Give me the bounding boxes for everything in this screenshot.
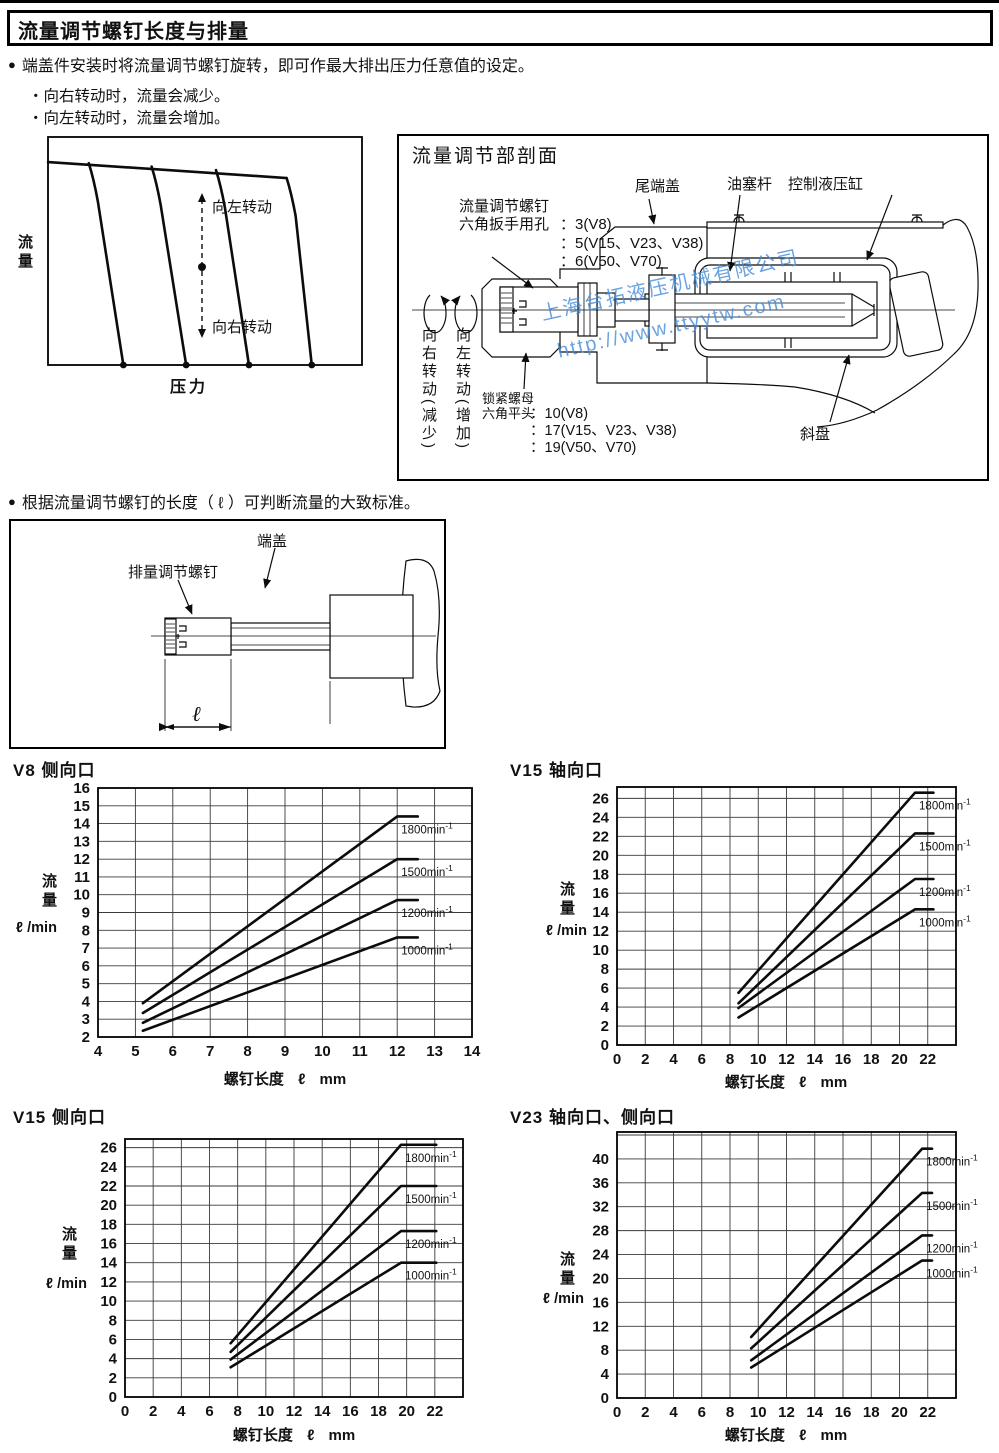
- svg-text:0: 0: [109, 1389, 117, 1406]
- svg-text:24: 24: [592, 1247, 609, 1264]
- pq-chart-canvas: [0, 130, 400, 405]
- svg-text:20: 20: [891, 1404, 908, 1421]
- chart-xlabel: 螺钉长度 ℓ mm: [636, 1424, 936, 1445]
- svg-text:16: 16: [592, 1294, 609, 1311]
- svg-text:6: 6: [82, 958, 90, 975]
- svg-text:1800min-1: 1800min-1: [401, 820, 453, 836]
- svg-text:7: 7: [206, 1043, 214, 1060]
- svg-text:20: 20: [592, 1270, 609, 1287]
- svg-text:10: 10: [592, 942, 609, 959]
- svg-text:12: 12: [389, 1043, 406, 1060]
- label-end-cover: 端盖: [257, 530, 287, 551]
- chart-ylabel-cn: 流量: [38, 873, 59, 911]
- chart-ylabel-unit: ℓ /min: [46, 1276, 87, 1292]
- svg-text:13: 13: [73, 833, 90, 850]
- intro-bullet: ●端盖件安装时将流量调节螺钉旋转，即可作最大排出压力任意值的设定。: [8, 52, 534, 76]
- label-swash-plate: 斜盘: [800, 423, 830, 444]
- svg-text:9: 9: [82, 905, 90, 922]
- svg-text:22: 22: [100, 1178, 117, 1195]
- svg-text:2: 2: [109, 1370, 117, 1387]
- svg-text:8: 8: [726, 1051, 734, 1068]
- svg-text:2: 2: [641, 1051, 649, 1068]
- screw-figure-drawing: [8, 518, 448, 750]
- svg-text:5: 5: [82, 976, 90, 993]
- svg-text:6: 6: [169, 1043, 177, 1060]
- label-adjust-screw: 排量调节螺钉: [128, 561, 218, 582]
- svg-text:26: 26: [592, 790, 609, 807]
- svg-text:4: 4: [601, 1366, 610, 1383]
- svg-text:14: 14: [100, 1255, 117, 1272]
- svg-text:12: 12: [778, 1404, 795, 1421]
- intro-sub1: ・向右转动时，流量会减少。: [28, 84, 230, 106]
- svg-text:0: 0: [613, 1404, 621, 1421]
- svg-text:22: 22: [919, 1404, 936, 1421]
- svg-text:10: 10: [750, 1404, 767, 1421]
- svg-text:28: 28: [592, 1223, 609, 1240]
- svg-text:4: 4: [177, 1403, 186, 1420]
- svg-text:3: 3: [82, 1011, 90, 1028]
- svg-text:8: 8: [726, 1404, 734, 1421]
- chart-ylabel-cn: 流量: [556, 1251, 577, 1289]
- svg-text:12: 12: [592, 1318, 609, 1335]
- svg-text:11: 11: [352, 1043, 368, 1060]
- chart-ylabel-unit: ℓ /min: [16, 920, 57, 936]
- chart-title: V8 侧向口: [13, 756, 96, 781]
- svg-text:12: 12: [592, 923, 609, 940]
- svg-text:1200min-1: 1200min-1: [926, 1239, 978, 1255]
- svg-text:1500min-1: 1500min-1: [919, 837, 971, 853]
- svg-text:13: 13: [426, 1043, 443, 1060]
- chart-ylabel-cn: 流量: [556, 881, 577, 919]
- svg-text:18: 18: [863, 1404, 880, 1421]
- page-title-box: 流量调节螺钉长度与排量: [7, 10, 993, 46]
- svg-text:4: 4: [601, 999, 610, 1016]
- svg-text:5: 5: [131, 1043, 139, 1060]
- label-tail-cover: 尾端盖: [635, 175, 680, 196]
- svg-text:20: 20: [891, 1051, 908, 1068]
- nut-note-4: ：19(V50、V70): [530, 436, 636, 457]
- chart-v15-axial: 0246810121416182022024681012141618202224…: [500, 755, 999, 1100]
- svg-text:4: 4: [669, 1051, 678, 1068]
- chart-title: V23 轴向口、侧向口: [510, 1103, 675, 1128]
- svg-text:4: 4: [109, 1351, 118, 1368]
- svg-text:14: 14: [806, 1404, 823, 1421]
- svg-text:18: 18: [100, 1216, 117, 1233]
- turn-left-column: 向左转动(增加): [453, 327, 471, 451]
- svg-text:8: 8: [601, 1342, 609, 1359]
- svg-text:40: 40: [592, 1151, 609, 1168]
- svg-text:6: 6: [601, 980, 609, 997]
- bullet-icon: ●: [8, 57, 16, 72]
- svg-text:1000min-1: 1000min-1: [919, 913, 971, 929]
- chart-v8-side: 4567891011121314234567891011121314151618…: [0, 755, 499, 1100]
- chart-title: V15 侧向口: [13, 1103, 106, 1128]
- svg-text:18: 18: [863, 1051, 880, 1068]
- svg-text:9: 9: [281, 1043, 289, 1060]
- svg-text:6: 6: [698, 1404, 706, 1421]
- svg-text:20: 20: [592, 847, 609, 864]
- svg-text:16: 16: [592, 885, 609, 902]
- svg-text:1200min-1: 1200min-1: [401, 904, 453, 920]
- svg-text:0: 0: [613, 1051, 621, 1068]
- intro-sub2: ・向左转动时，流量会增加。: [28, 106, 230, 128]
- svg-text:6: 6: [205, 1403, 213, 1420]
- page-title: 流量调节螺钉长度与排量: [10, 13, 990, 44]
- label-control-cylinder: 控制液压缸: [788, 173, 863, 194]
- chart-v15-side: 0246810121416182022024681012141618202224…: [0, 1100, 499, 1453]
- svg-text:10: 10: [314, 1043, 331, 1060]
- svg-text:15: 15: [73, 798, 90, 815]
- svg-text:20: 20: [398, 1403, 415, 1420]
- svg-text:1000min-1: 1000min-1: [926, 1265, 978, 1281]
- svg-text:32: 32: [592, 1199, 609, 1216]
- bullet-icon: ●: [8, 494, 16, 509]
- svg-text:4: 4: [669, 1404, 678, 1421]
- svg-text:1000min-1: 1000min-1: [405, 1267, 457, 1283]
- svg-text:14: 14: [314, 1403, 331, 1420]
- screw-note-2a: 六角扳手用孔: [459, 213, 549, 234]
- second-bullet: ●根据流量调节螺钉的长度（ ℓ ）可判断流量的大致标准。: [8, 489, 420, 513]
- screw-note-4: ：6(V50、V70): [560, 250, 662, 271]
- svg-text:24: 24: [100, 1159, 117, 1176]
- chart-v8-canvas: 4567891011121314234567891011121314151618…: [0, 755, 499, 1100]
- chart-title: V15 轴向口: [510, 756, 603, 781]
- svg-text:0: 0: [601, 1037, 609, 1054]
- svg-text:8: 8: [82, 922, 90, 939]
- svg-text:1200min-1: 1200min-1: [405, 1235, 457, 1251]
- svg-text:26: 26: [100, 1140, 117, 1157]
- svg-text:1800min-1: 1800min-1: [919, 797, 971, 813]
- svg-text:14: 14: [806, 1051, 823, 1068]
- section-title: 流量调节部剖面: [412, 141, 559, 168]
- svg-text:14: 14: [464, 1043, 481, 1060]
- svg-text:0: 0: [121, 1403, 129, 1420]
- svg-text:16: 16: [73, 780, 90, 797]
- pq-ylabel: 流量: [14, 234, 35, 272]
- svg-text:1800min-1: 1800min-1: [926, 1153, 978, 1169]
- svg-text:14: 14: [592, 904, 609, 921]
- svg-text:24: 24: [592, 809, 609, 826]
- svg-text:36: 36: [592, 1175, 609, 1192]
- svg-text:14: 14: [73, 816, 90, 833]
- chart-xlabel: 螺钉长度 ℓ mm: [135, 1068, 435, 1089]
- svg-text:2: 2: [601, 1018, 609, 1035]
- svg-text:7: 7: [82, 940, 90, 957]
- svg-text:11: 11: [74, 869, 90, 886]
- svg-text:2: 2: [641, 1404, 649, 1421]
- turn-right-column: 向右转动(减少): [419, 327, 437, 451]
- svg-text:8: 8: [233, 1403, 241, 1420]
- svg-text:4: 4: [94, 1043, 103, 1060]
- svg-text:6: 6: [698, 1051, 706, 1068]
- svg-text:10: 10: [100, 1293, 117, 1310]
- svg-text:12: 12: [286, 1403, 303, 1420]
- svg-text:12: 12: [73, 851, 90, 868]
- svg-text:6: 6: [109, 1331, 117, 1348]
- label-plug-rod: 油塞杆: [727, 173, 772, 194]
- svg-text:12: 12: [778, 1051, 795, 1068]
- chart-ylabel-unit: ℓ /min: [546, 923, 587, 939]
- svg-text:16: 16: [835, 1051, 852, 1068]
- pq-chart: 流量 压力 向左转动 向右转动: [0, 130, 400, 405]
- svg-text:16: 16: [342, 1403, 359, 1420]
- svg-text:1000min-1: 1000min-1: [401, 941, 453, 957]
- svg-text:10: 10: [73, 887, 90, 904]
- svg-text:18: 18: [370, 1403, 387, 1420]
- chart-ylabel-cn: 流量: [58, 1226, 79, 1264]
- svg-text:4: 4: [82, 993, 91, 1010]
- screw-note-2b: ：3(V8): [560, 213, 612, 234]
- document-page: 流量调节螺钉长度与排量 ●端盖件安装时将流量调节螺钉旋转，即可作最大排出压力任意…: [0, 0, 999, 1453]
- svg-text:2: 2: [82, 1029, 90, 1046]
- chart-ylabel-unit: ℓ /min: [543, 1291, 584, 1307]
- svg-text:8: 8: [601, 961, 609, 978]
- svg-text:22: 22: [592, 828, 609, 845]
- section-view: 上海台拓液压机械有限公司 http://www.ttyytw.com 流量调节部…: [397, 127, 997, 483]
- svg-text:20: 20: [100, 1197, 117, 1214]
- pq-turn-left-label: 向左转动: [212, 196, 272, 217]
- screw-figure: 端盖 排量调节螺钉 ℓ: [8, 518, 448, 750]
- nut-note-2a: 六角平头: [482, 403, 534, 422]
- svg-text:8: 8: [109, 1312, 117, 1329]
- dim-ell: ℓ: [192, 702, 201, 727]
- chart-xlabel: 螺钉长度 ℓ mm: [144, 1424, 444, 1445]
- svg-text:22: 22: [919, 1051, 936, 1068]
- svg-text:10: 10: [750, 1051, 767, 1068]
- svg-text:8: 8: [243, 1043, 251, 1060]
- svg-text:1200min-1: 1200min-1: [919, 883, 971, 899]
- svg-text:12: 12: [100, 1274, 117, 1291]
- svg-text:18: 18: [592, 866, 609, 883]
- svg-text:1500min-1: 1500min-1: [405, 1190, 457, 1206]
- svg-text:10: 10: [257, 1403, 274, 1420]
- chart-xlabel: 螺钉长度 ℓ mm: [636, 1071, 936, 1092]
- pq-turn-right-label: 向右转动: [212, 316, 272, 337]
- svg-text:22: 22: [426, 1403, 443, 1420]
- pq-xlabel: 压力: [170, 373, 208, 397]
- scan-edge-line: [0, 0, 999, 3]
- svg-text:0: 0: [601, 1390, 609, 1407]
- svg-text:16: 16: [835, 1404, 852, 1421]
- svg-text:2: 2: [149, 1403, 157, 1420]
- svg-text:1500min-1: 1500min-1: [926, 1197, 978, 1213]
- svg-text:1800min-1: 1800min-1: [405, 1149, 457, 1165]
- chart-v23: 0246810121416182022048121620242832364018…: [500, 1100, 999, 1453]
- svg-text:16: 16: [100, 1236, 117, 1253]
